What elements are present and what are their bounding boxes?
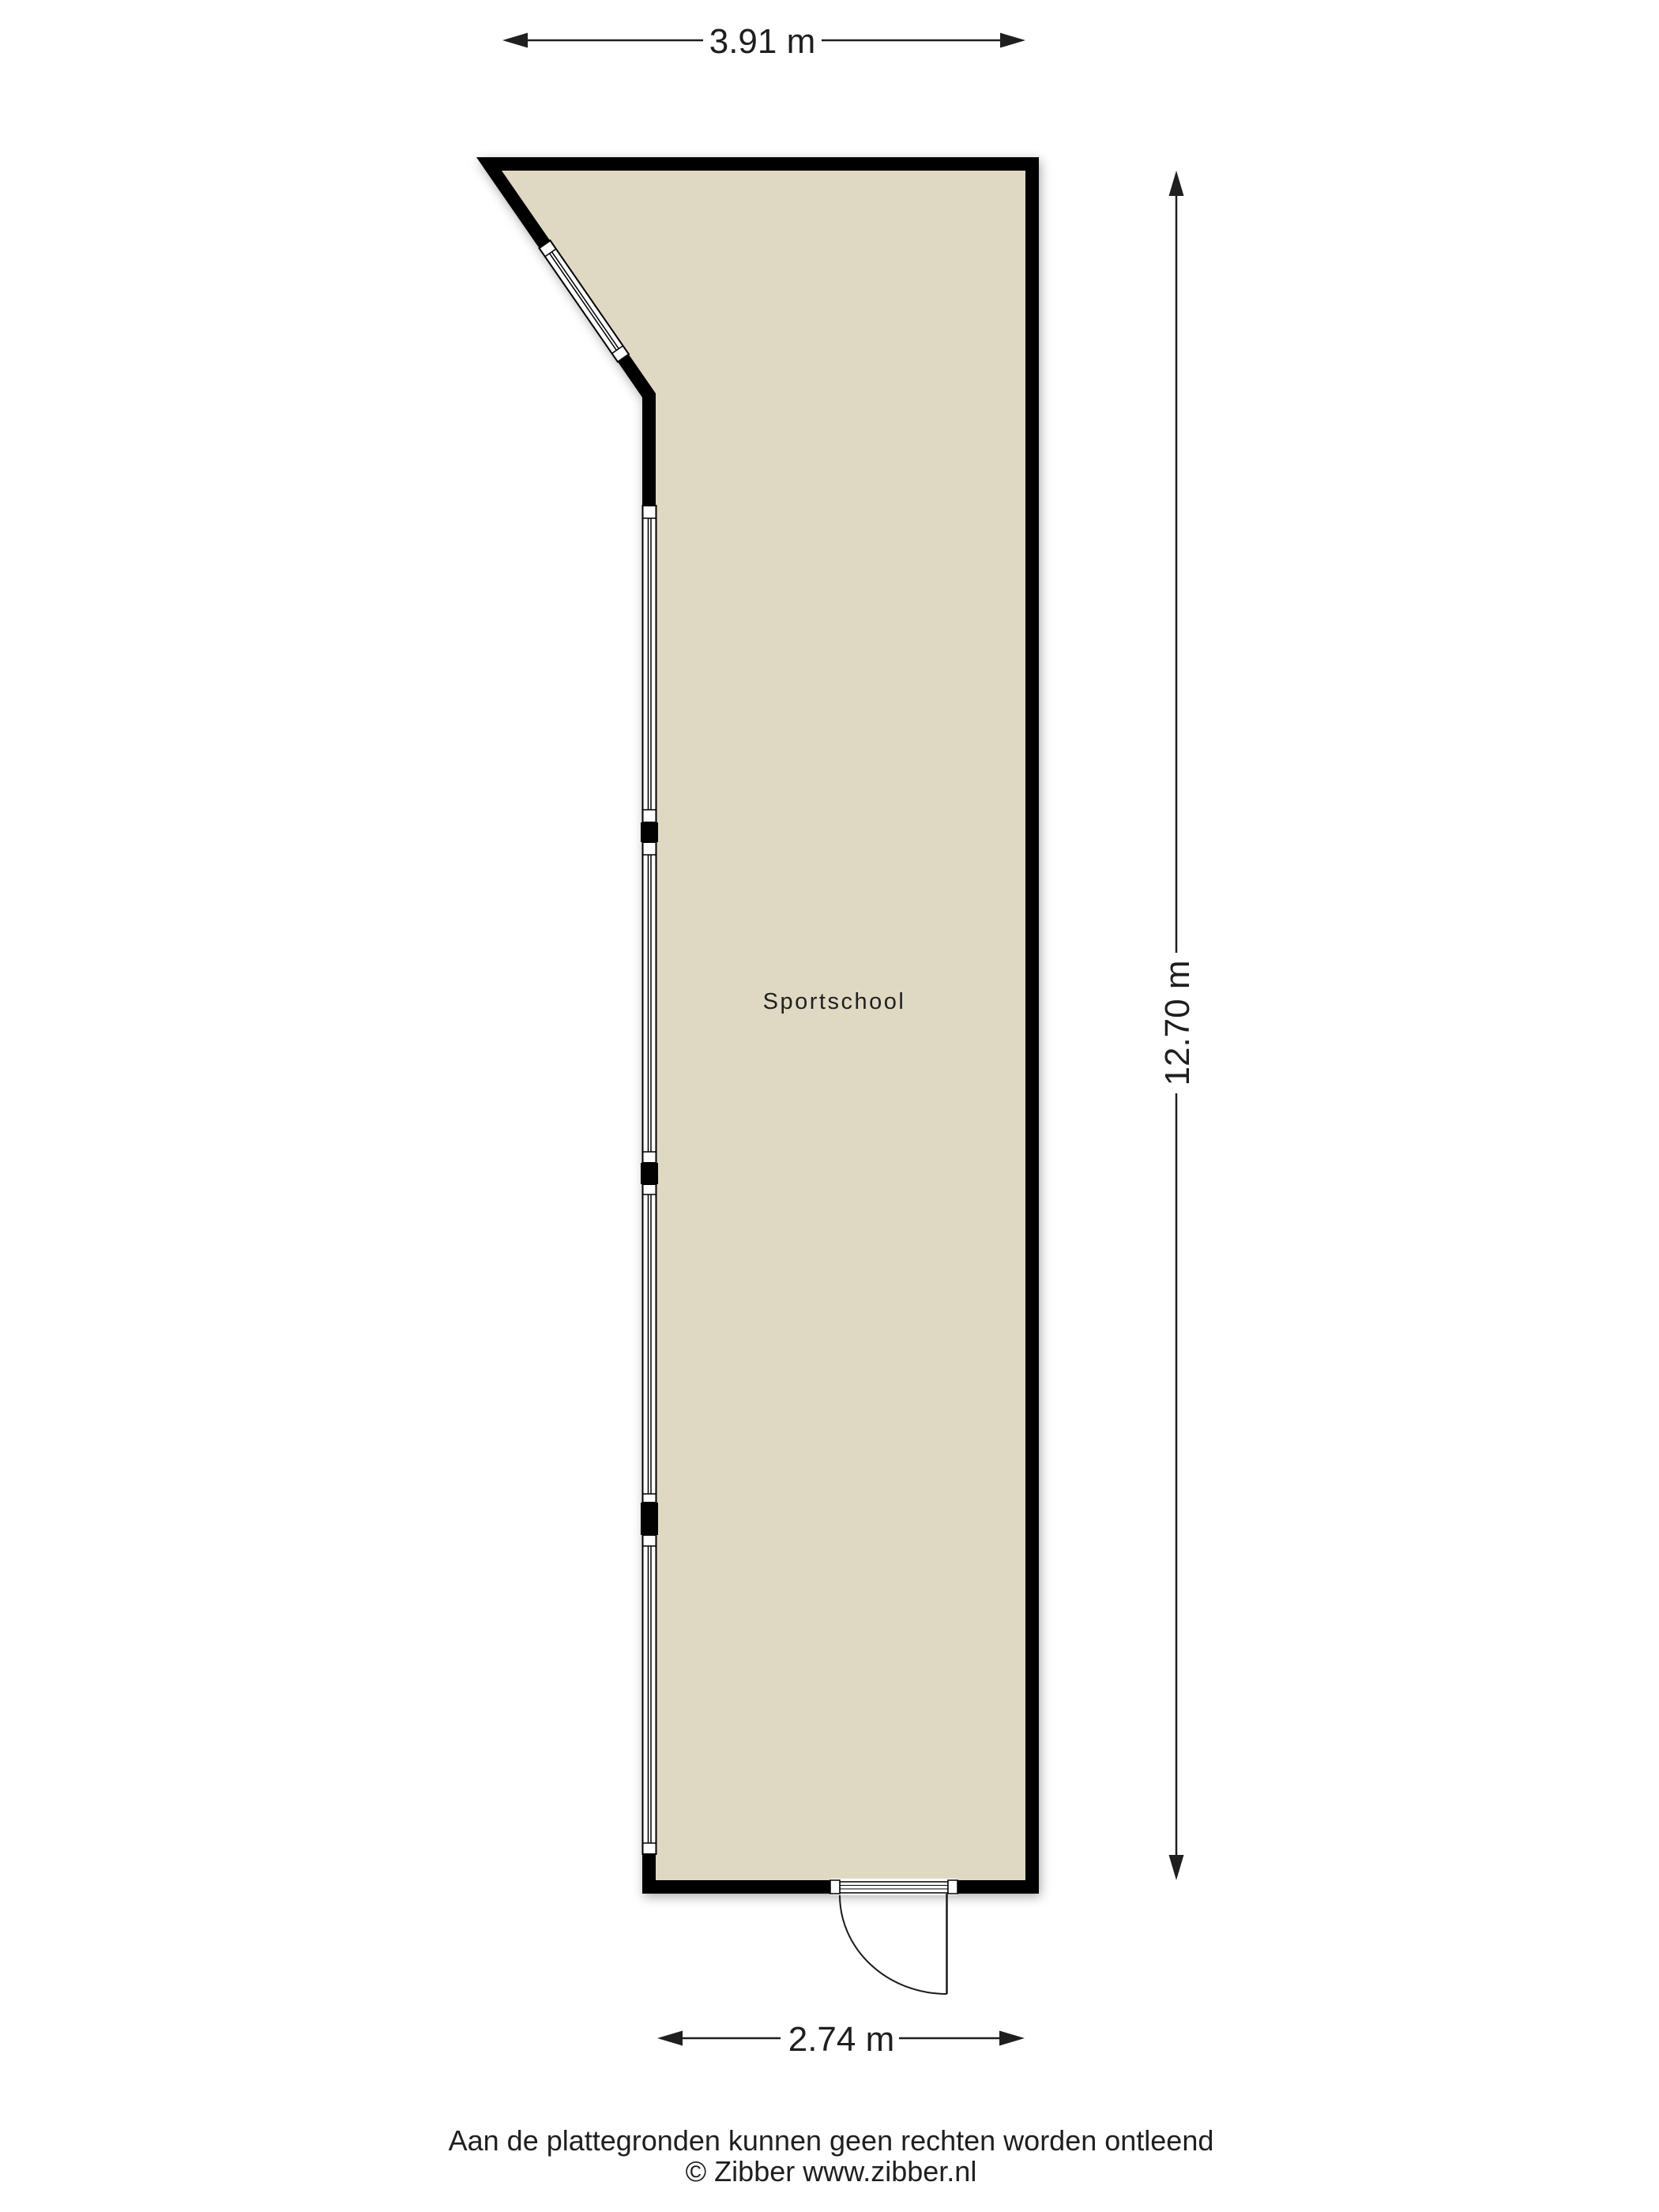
floorplan-page: 3.91 m 12.70 m 2.74 m [0,0,1659,2212]
door-threshold [840,1882,948,1893]
door-swing-arc [840,1895,947,1994]
dimension-top-arrow-right [1000,33,1025,48]
dimension-top-arrow-left [502,33,528,48]
room-label: Sportschool [763,989,906,1014]
floor-area [502,171,1025,1880]
wall-pier-1 [641,822,658,842]
dimension-bottom-arrow-left [657,2031,683,2046]
door-jamb-right [948,1880,957,1894]
wall-pier-2 [641,1163,658,1184]
room: Sportschool [476,157,1039,1994]
dimension-top-label: 3.91 m [709,22,816,61]
window-left-4 [643,1535,656,1854]
window-left-3 [643,1184,656,1503]
wall-pier-3 [641,1503,658,1535]
dimension-top: 3.91 m [502,22,1025,61]
dimension-bottom-label: 2.74 m [788,2020,895,2059]
dimension-right: 12.70 m [1158,171,1197,1880]
dimension-right-arrow-down [1169,1855,1184,1880]
footer-copyright: © Zibber www.zibber.nl [686,2155,977,2188]
dimension-bottom-arrow-right [999,2031,1025,2046]
footer: Aan de plattegronden kunnen geen rechten… [449,2124,1214,2188]
footer-disclaimer: Aan de plattegronden kunnen geen rechten… [449,2124,1214,2157]
dimension-right-arrow-up [1169,171,1184,196]
window-left-1 [643,506,656,822]
floorplan-svg: 3.91 m 12.70 m 2.74 m [0,0,1659,2212]
door-jamb-left [830,1880,840,1894]
window-left-2 [643,842,656,1163]
dimension-bottom: 2.74 m [657,2020,1025,2059]
entrance-door [830,1879,957,1994]
dimension-right-label: 12.70 m [1158,961,1197,1086]
